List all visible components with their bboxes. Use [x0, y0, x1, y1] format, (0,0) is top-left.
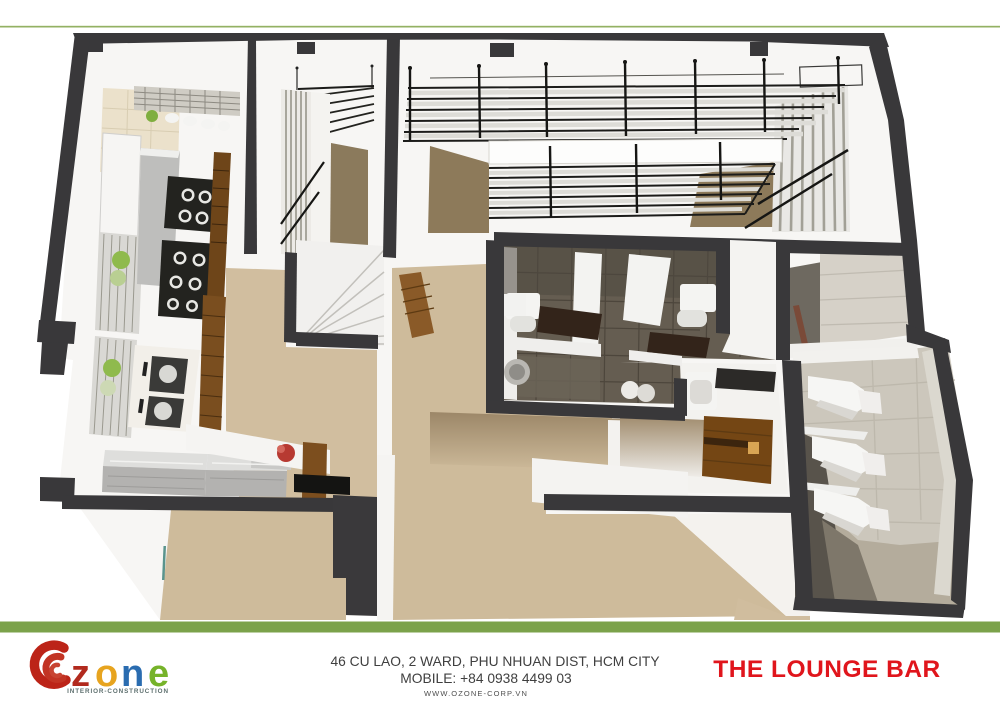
svg-text:THE LOUNGE BAR: THE LOUNGE BAR	[713, 656, 941, 683]
svg-text:WWW.OZONE-CORP.VN: WWW.OZONE-CORP.VN	[424, 689, 528, 698]
svg-text:46 CU LAO, 2 WARD, PHU NHUAN: 46 CU LAO, 2 WARD, PHU NHUAN DIST, HCM C…	[330, 654, 659, 669]
svg-text:INTERIOR-CONSTRUCTION: INTERIOR-CONSTRUCTION	[67, 688, 169, 695]
svg-text:MOBILE: +84 0938 4499 03: MOBILE: +84 0938 4499 03	[400, 671, 572, 686]
